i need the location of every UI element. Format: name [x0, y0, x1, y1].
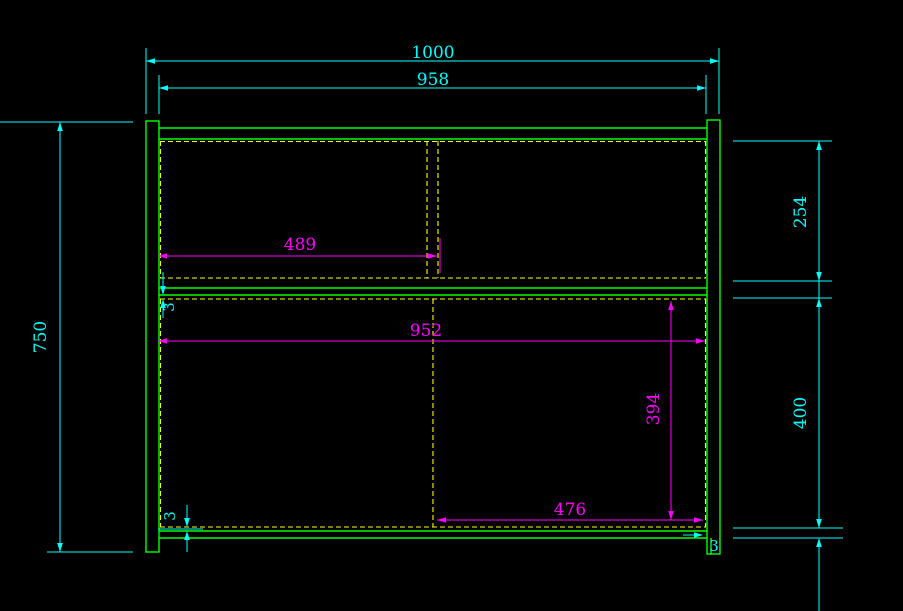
dim-overall-height-label: 750	[31, 321, 51, 353]
arrowhead-down	[816, 519, 822, 528]
dim-lower-divider-offset: 476	[437, 500, 703, 523]
dim-bottom-back-gap-label: 3	[161, 511, 179, 521]
dim-inner-width-label: 952	[410, 321, 442, 341]
arrowhead-up	[816, 141, 822, 150]
dim-lower-section-height: 400	[733, 281, 843, 538]
dim-bottom-back-gap: 3	[158, 505, 203, 552]
dim-lower-section-height-label: 400	[791, 397, 811, 429]
arrowhead-left	[146, 58, 155, 64]
arrowhead-up	[57, 122, 63, 131]
arrowhead-up	[816, 298, 822, 307]
arrowhead-up	[184, 531, 190, 540]
arrowhead-down	[816, 272, 822, 281]
right-side-panel	[707, 120, 720, 554]
arrowhead-down	[57, 543, 63, 552]
arrowhead-right	[696, 338, 705, 344]
dim-overall-height: 750	[0, 122, 133, 552]
dim-upper-divider-offset: 489	[158, 235, 440, 273]
dim-lower-divider-offset-label: 476	[554, 500, 586, 520]
arrowhead-left	[159, 85, 168, 91]
arrowhead-down	[668, 511, 674, 520]
dim-upper-section-height: 254	[733, 141, 832, 281]
cad-viewport[interactable]: 1000 958 750 254 400	[0, 0, 903, 611]
dim-lower-divider-height: 394	[644, 301, 674, 520]
arrowhead-right	[428, 253, 437, 259]
dim-shelf-back-gap-label: 3	[160, 302, 178, 312]
arrowhead-right	[710, 58, 719, 64]
dim-lower-divider-height-label: 394	[644, 393, 664, 425]
dim-inner-width: 952	[158, 321, 705, 344]
arrowhead-down	[184, 518, 190, 527]
dim-upper-section-height-label: 254	[791, 196, 811, 228]
arrowhead-right	[697, 85, 706, 91]
cad-canvas: 1000 958 750 254 400	[0, 0, 903, 611]
dim-upper-divider-offset-label: 489	[284, 235, 316, 255]
arrowhead-down	[160, 286, 166, 295]
arrowhead-up	[816, 538, 822, 547]
dim-inner-top-width: 958	[159, 70, 706, 114]
dim-right-back-gap: 3	[683, 532, 719, 555]
dim-overall-width-label: 1000	[411, 43, 454, 63]
dim-right-back-gap-label: 3	[709, 537, 719, 555]
arrowhead-right	[694, 532, 703, 538]
arrowhead-right	[694, 517, 703, 523]
arrowhead-left	[437, 517, 446, 523]
dim-bottom-plate	[816, 538, 822, 611]
arrowhead-up	[668, 301, 674, 310]
dim-inner-top-width-label: 958	[417, 70, 449, 90]
left-side-panel	[146, 121, 159, 552]
